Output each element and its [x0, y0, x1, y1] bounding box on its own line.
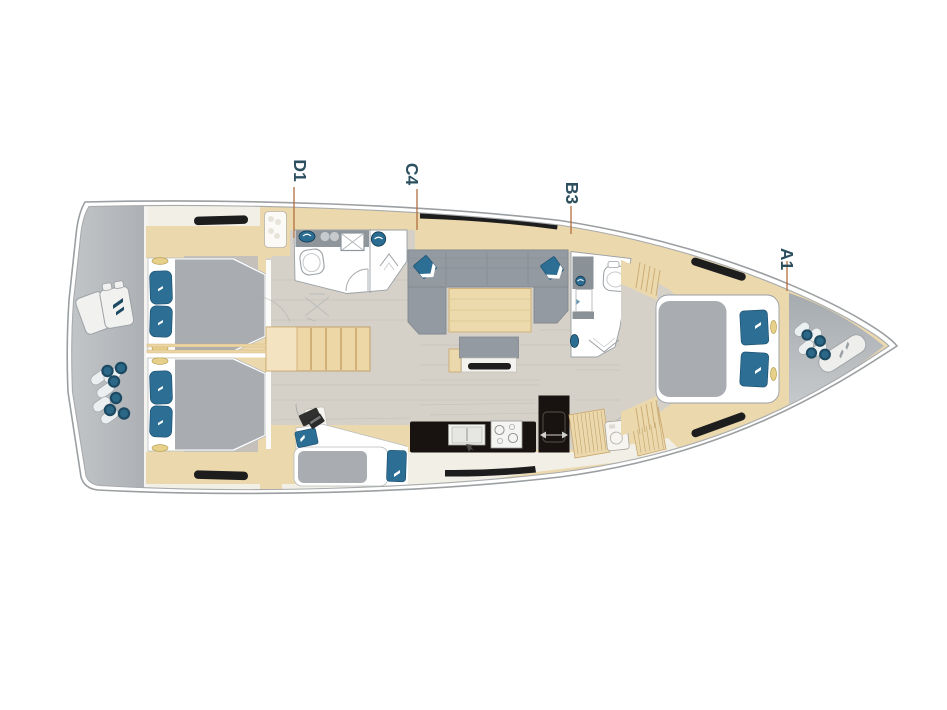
svg-text:C4: C4	[402, 163, 422, 186]
svg-text:B3: B3	[562, 182, 582, 205]
svg-text:A1: A1	[777, 248, 797, 271]
svg-text:D1: D1	[290, 159, 310, 182]
